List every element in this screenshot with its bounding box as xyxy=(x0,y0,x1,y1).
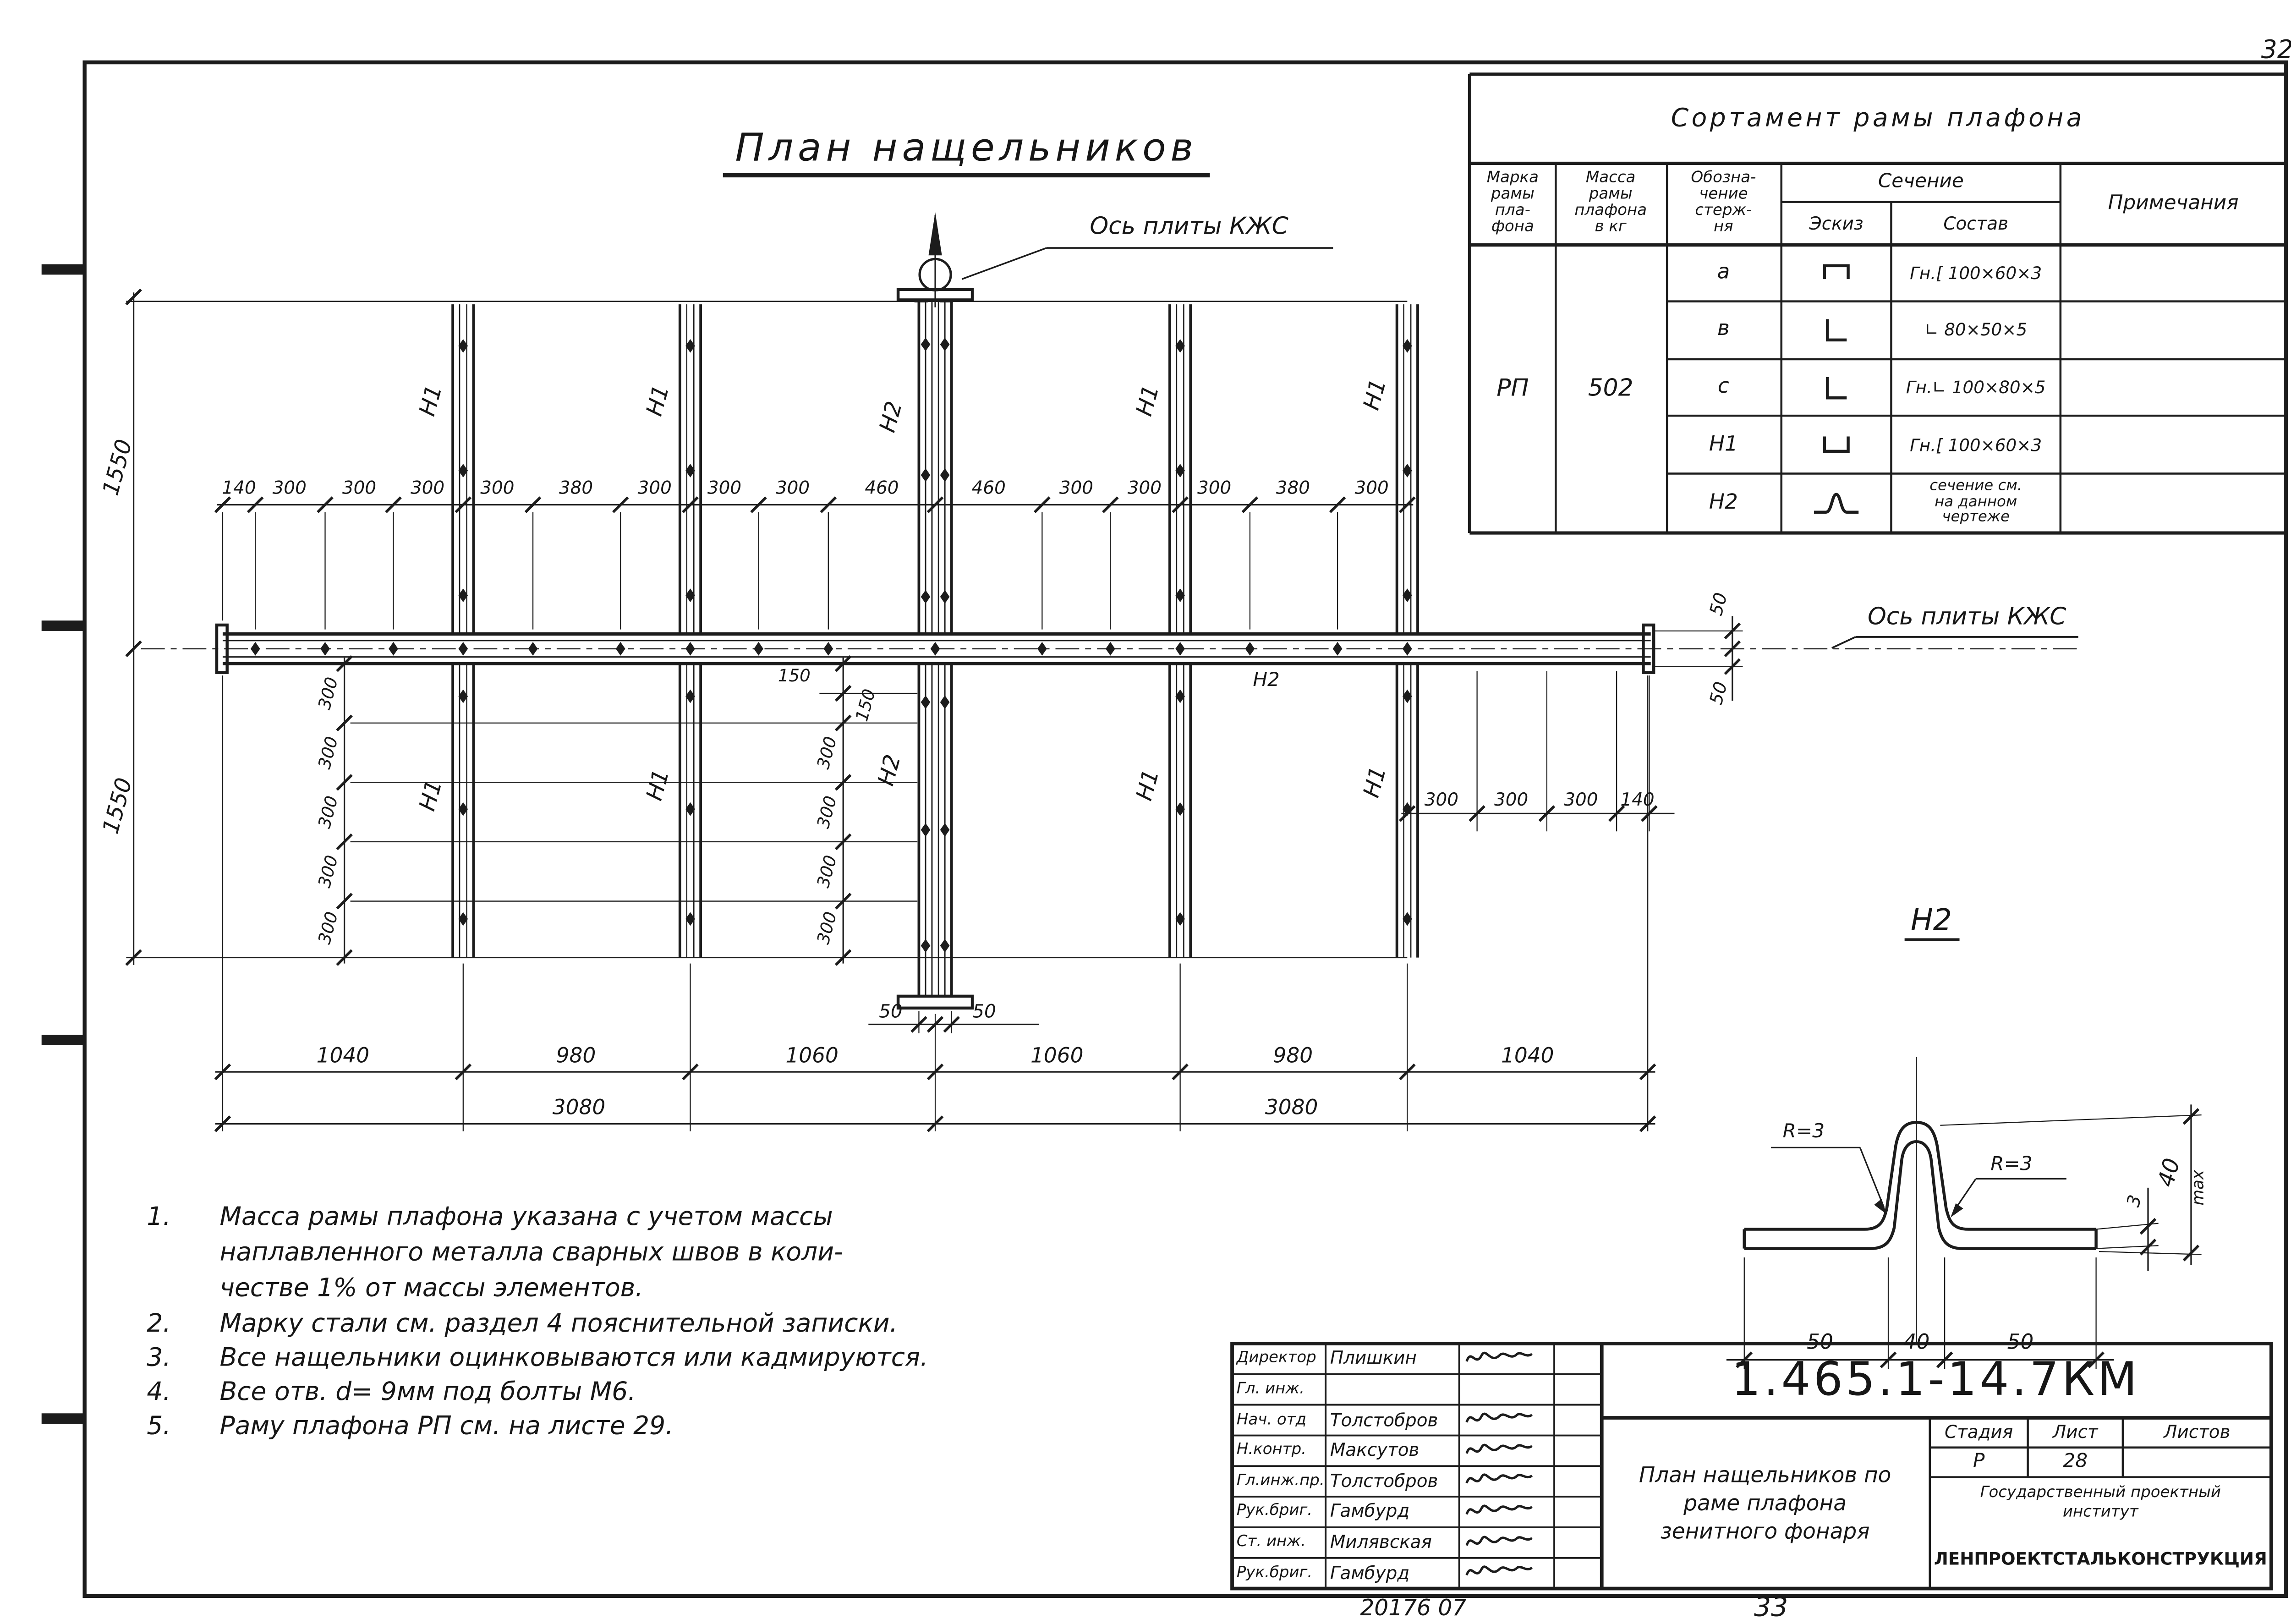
axis-label-right: Ось плиты КЖС xyxy=(1868,605,2066,630)
person-name: Милявская xyxy=(1330,1533,1432,1552)
dim-top: 300 xyxy=(342,479,376,498)
dim-center-chain: 150 xyxy=(778,666,811,684)
person-name: Гамбурд xyxy=(1330,1564,1409,1583)
axis-symbol xyxy=(915,212,953,307)
col-header-oboznachenie: Обозна- чение стерж- ня xyxy=(1691,170,1756,236)
role: Нач. отд xyxy=(1237,1412,1306,1428)
detail-radius-left: R=3 xyxy=(1783,1123,1825,1143)
dim-top: 300 xyxy=(480,479,514,498)
dimension-lines xyxy=(126,290,1740,1131)
role: Директор xyxy=(1237,1350,1316,1367)
sheet-value: 28 xyxy=(2063,1452,2088,1473)
col-header-eskiz: Эскиз xyxy=(1809,215,1863,234)
note-number: 2. xyxy=(147,1311,171,1338)
cell-sostav: Гн.∟ 100×80×5 xyxy=(1906,379,2046,396)
sortament-title: Сортамент рамы плафона xyxy=(1671,105,2085,132)
detail-title: Н2 xyxy=(1911,905,1952,936)
dim-center-bottom: 50 xyxy=(972,1001,996,1021)
note-line: честве 1% от массы элементов. xyxy=(219,1275,643,1302)
dim-right-chain: 140 xyxy=(1620,791,1654,810)
dim-right-chain: 300 xyxy=(1425,791,1458,810)
note-number: 1. xyxy=(147,1204,171,1230)
h2-detail xyxy=(1726,940,2202,1369)
dim-top: 300 xyxy=(1128,479,1162,498)
signature xyxy=(1467,1353,1532,1575)
note-number: 4. xyxy=(147,1379,171,1406)
drawing-sheet: 32 План нащельников Ось плиты КЖС Ось пл… xyxy=(0,0,2291,1624)
dim-span: 980 xyxy=(1273,1046,1313,1068)
h2-bottom-cap xyxy=(898,996,972,1008)
dim-top: 380 xyxy=(1276,479,1310,498)
person-name: Толстобров xyxy=(1330,1411,1438,1430)
beam-label: Н2 xyxy=(1253,671,1279,692)
note-line: Все отв. d= 9мм под болты М6. xyxy=(219,1379,636,1406)
page-number: 33 xyxy=(1754,1594,1788,1622)
role: Гл. инж. xyxy=(1237,1381,1304,1398)
drawing-title-line: раме плафона xyxy=(1683,1494,1847,1517)
stage-header: Стадия xyxy=(1945,1423,2013,1442)
detail-dim: 40 xyxy=(1903,1333,1930,1355)
sketch-angle-icon xyxy=(1827,377,1847,398)
stamp-code: 20176 07 xyxy=(1360,1597,1466,1621)
cell-id: в xyxy=(1717,318,1730,340)
stage-value: Р xyxy=(1973,1452,1984,1473)
dim-top: 300 xyxy=(776,479,810,498)
sketch-channel-up-icon xyxy=(1825,437,1848,451)
beam xyxy=(141,625,2078,673)
dim-span: 980 xyxy=(556,1046,596,1068)
person-name: Гамбурд xyxy=(1330,1503,1409,1521)
note-line: Марку стали см. раздел 4 пояснительной з… xyxy=(219,1311,898,1338)
role: Н.контр. xyxy=(1237,1443,1306,1459)
role: Рук.бриг. xyxy=(1237,1503,1312,1520)
note-number: 3. xyxy=(147,1345,171,1372)
note-line: наплавленного металла сварных швов в кол… xyxy=(219,1240,843,1266)
note-number: 5. xyxy=(147,1413,171,1440)
cell-id: с xyxy=(1718,377,1729,399)
dim-span: 1040 xyxy=(1501,1046,1554,1068)
institute-line: институт xyxy=(2063,1504,2138,1521)
cell-sostav: сечение см. на данном чертеже xyxy=(1929,480,2022,527)
axis-label-top: Ось плиты КЖС xyxy=(1090,214,1288,240)
role: Рук.бриг. xyxy=(1237,1565,1312,1581)
stage-header: Листов xyxy=(2164,1423,2230,1442)
col-header-marka: Марка рамы пла- фона xyxy=(1487,170,1539,236)
detail-dim: 50 xyxy=(1807,1333,1833,1355)
sketch-channel-down-icon xyxy=(1825,266,1848,279)
cell-sostav: ∟ 80×50×5 xyxy=(1924,320,2027,338)
dim-top: 300 xyxy=(1059,479,1093,498)
dim-span: 1040 xyxy=(317,1046,369,1068)
institute-name: ЛЕНПРОЕКТСТАЛЬКОНСТРУКЦИЯ xyxy=(1934,1550,2267,1568)
institute-line: Государственный проектный xyxy=(1980,1485,2221,1502)
binding-mark xyxy=(42,620,85,631)
binding-mark xyxy=(42,1413,85,1424)
axis-label-leader xyxy=(962,248,1333,279)
detail-dim: 50 xyxy=(2007,1333,2033,1355)
col-header-sechenie: Сечение xyxy=(1878,172,1964,193)
plan-title: План нащельников xyxy=(735,130,1197,170)
corner-number: 32 xyxy=(2261,37,2291,64)
col-header-massa: Масса рамы плафона в кг xyxy=(1574,170,1647,236)
stage-header: Лист xyxy=(2053,1423,2098,1442)
note-line: Все нащельники оцинковываются или кадмир… xyxy=(219,1345,928,1372)
axis-label-right-underline xyxy=(1832,637,2078,648)
dim-top: 300 xyxy=(638,479,672,498)
col-header-primechaniya: Примечания xyxy=(2108,193,2239,214)
cell-id: Н1 xyxy=(1709,434,1738,456)
dim-top: 460 xyxy=(865,479,899,498)
binding-mark xyxy=(42,264,85,275)
role: Гл.инж.пр. xyxy=(1237,1473,1325,1490)
sketch-bump-icon xyxy=(1814,494,1858,512)
person-name: Максутов xyxy=(1330,1441,1420,1460)
binding-mark xyxy=(42,1035,85,1045)
dim-top: 300 xyxy=(1354,479,1388,498)
col-header-sostav: Состав xyxy=(1943,215,2008,234)
dim-top: 380 xyxy=(559,479,593,498)
cell-sostav: Гн.[ 100×60×3 xyxy=(1910,436,2042,454)
dim-span: 1060 xyxy=(1030,1046,1083,1068)
dim-total: 3080 xyxy=(553,1098,605,1120)
drawing-title-line: План нащельников по xyxy=(1639,1466,1891,1489)
cell-id: а xyxy=(1717,262,1730,284)
detail-height-suffix: max xyxy=(2190,1170,2207,1206)
dim-top: 140 xyxy=(222,479,256,498)
detail-radius-right: R=3 xyxy=(1990,1155,2032,1176)
dim-top: 460 xyxy=(972,479,1006,498)
note-line: Раму плафона РП см. на листе 29. xyxy=(219,1413,673,1440)
cell-sostav: Гн.[ 100×60×3 xyxy=(1910,264,2042,282)
dim-top: 300 xyxy=(273,479,307,498)
sortament-table-grid xyxy=(1469,74,2286,533)
dim-top: 300 xyxy=(707,479,741,498)
person-name: Плишкин xyxy=(1330,1350,1417,1368)
drawing-title-line: зенитного фонаря xyxy=(1661,1522,1870,1545)
role: Ст. инж. xyxy=(1237,1534,1306,1551)
sketch-angle-icon xyxy=(1827,319,1847,340)
dim-right-chain: 300 xyxy=(1564,791,1598,810)
cell-marka: РП xyxy=(1496,376,1529,401)
dim-top: 300 xyxy=(411,479,444,498)
dim-center-bottom: 50 xyxy=(879,1001,903,1021)
person-name: Толстобров xyxy=(1330,1472,1438,1491)
dim-top: 300 xyxy=(1197,479,1231,498)
cell-massa: 502 xyxy=(1588,376,1633,401)
dim-right-chain: 300 xyxy=(1494,791,1528,810)
doc-number: 1.465.1-14.7КМ xyxy=(1732,1356,2140,1405)
cell-id: Н2 xyxy=(1709,492,1738,514)
note-line: Масса рамы плафона указана с учетом масс… xyxy=(219,1204,833,1230)
dim-total: 3080 xyxy=(1265,1098,1318,1120)
dim-span: 1060 xyxy=(785,1046,838,1068)
